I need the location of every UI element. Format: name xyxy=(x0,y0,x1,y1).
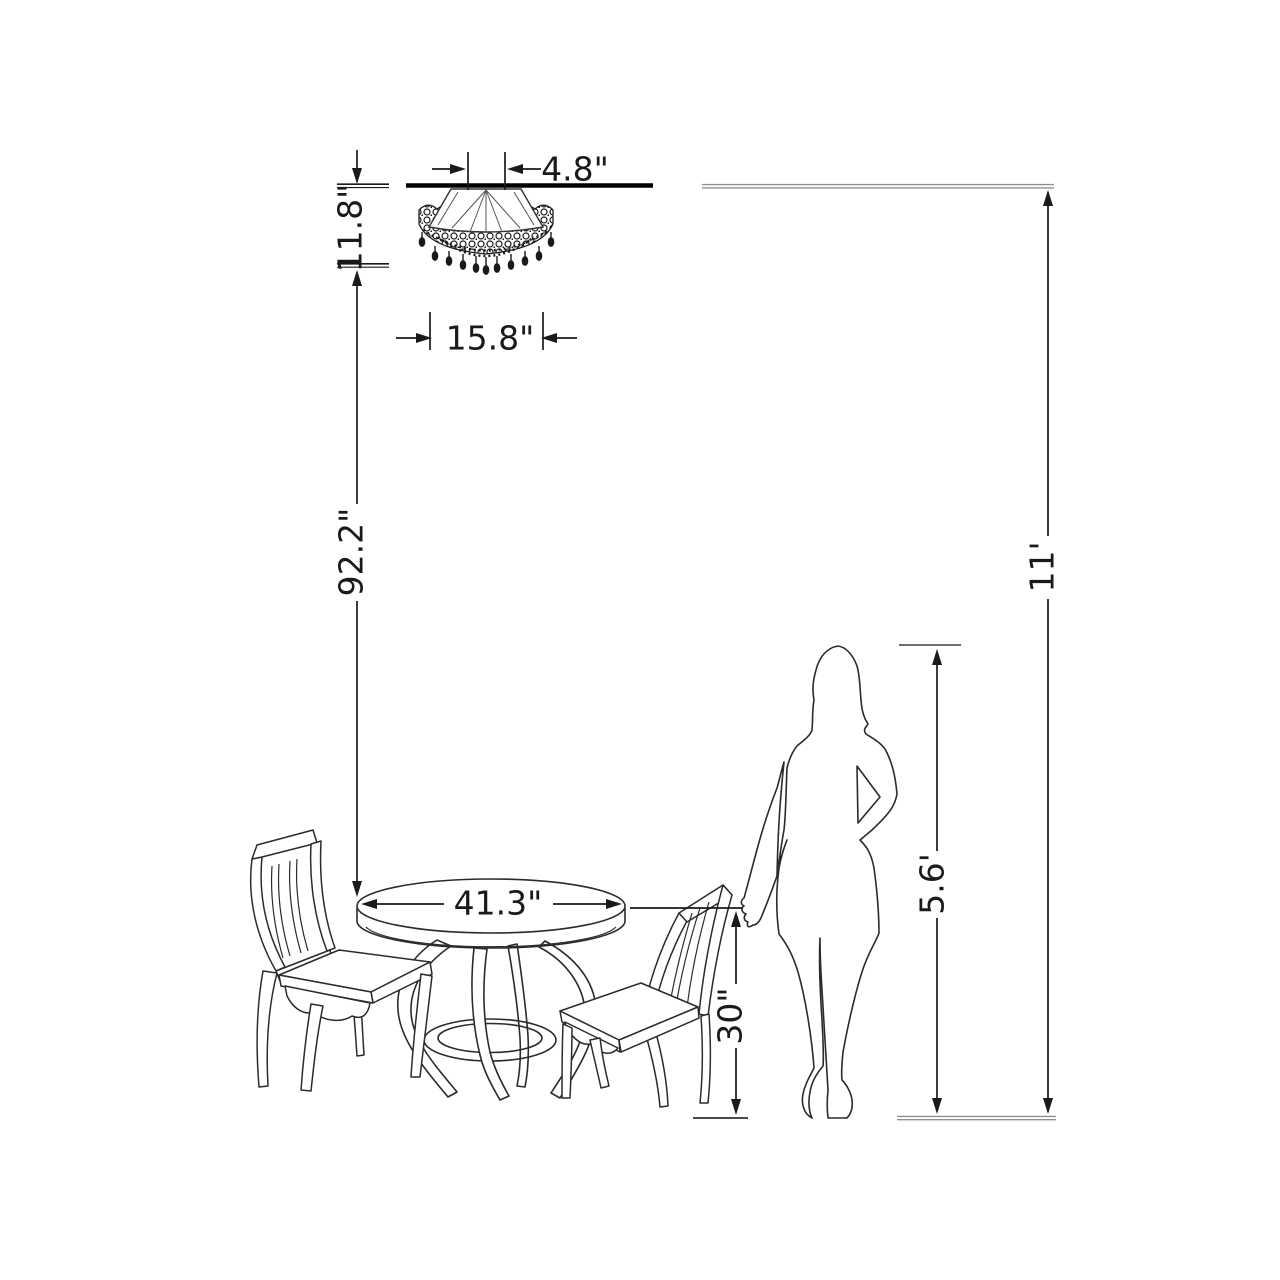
arrow-down-icon xyxy=(1043,1098,1053,1114)
dimension-fixture-width-label: 15.8" xyxy=(446,319,535,358)
chair-back-stile xyxy=(251,857,285,971)
woman-silhouette xyxy=(741,646,897,1118)
arrow-up-icon xyxy=(932,649,942,665)
ceiling-reference-line xyxy=(702,185,1054,188)
arrow-left-icon xyxy=(507,164,523,174)
left-chair-drawing xyxy=(251,830,432,1091)
chair-top-rail xyxy=(252,830,317,859)
dimension-fixture-height-label: 11.8" xyxy=(331,184,370,273)
arrow-up-icon xyxy=(1043,190,1053,206)
arrow-right-icon xyxy=(450,164,466,174)
table-rear-leg xyxy=(508,944,528,1087)
chair-rear-leg xyxy=(257,971,277,1087)
dimension-canopy-width-label: 4.8" xyxy=(541,150,609,189)
chair-front-leg xyxy=(301,1004,323,1091)
diagram-canvas: 4.8" 11.8" 15.8" 92.2" 41.3" xyxy=(0,0,1280,1280)
dimension-table-diameter-label: 41.3" xyxy=(454,884,543,923)
dimension-diagram: 4.8" 11.8" 15.8" 92.2" 41.3" xyxy=(0,0,1280,1280)
dimension-ceiling-height-label: 11' xyxy=(1023,541,1062,592)
dimension-person-height-label: 5.6' xyxy=(913,853,952,915)
arrow-down-icon xyxy=(932,1098,942,1114)
arrow-down-icon xyxy=(731,1099,741,1115)
chandelier-drawing xyxy=(419,189,554,274)
arrow-up-icon xyxy=(731,911,741,927)
dimension-ceiling-height xyxy=(1043,190,1053,1114)
arrow-down-icon xyxy=(352,881,362,897)
floor-reference-line xyxy=(897,1116,1056,1119)
chair2-front-leg xyxy=(562,1024,572,1098)
dimension-chandelier-to-table-label: 92.2" xyxy=(332,508,371,597)
dimension-table-height-label: 30" xyxy=(711,987,750,1044)
arrow-down-icon xyxy=(352,168,362,184)
chair-back-slats xyxy=(272,859,308,958)
